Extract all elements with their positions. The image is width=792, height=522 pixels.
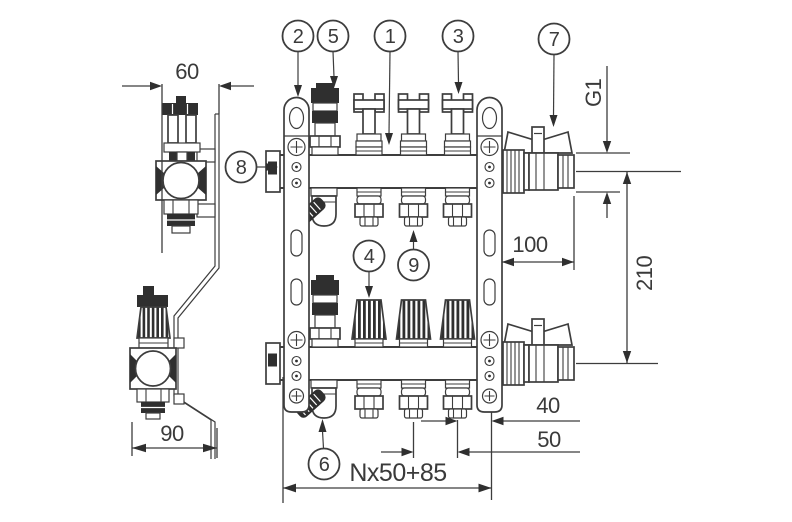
bottom-bar-end-cap <box>266 343 280 384</box>
svg-text:8: 8 <box>236 157 247 179</box>
svg-text:4: 4 <box>364 246 375 268</box>
thermostatic-knob-3 <box>441 299 475 347</box>
outlet-bottom-3 <box>444 380 472 418</box>
outlet-top-1 <box>355 188 383 226</box>
outlet-bottom-2 <box>400 380 428 418</box>
ball-valve-bottom <box>503 319 574 385</box>
outlet-bottom-1 <box>355 380 383 418</box>
callout-3: 3 <box>443 21 474 95</box>
outlet-top-2 <box>400 188 428 226</box>
dim-60-label: 60 <box>175 59 199 84</box>
side-view: 60 90 <box>122 59 254 459</box>
mounting-rail-right <box>477 98 502 413</box>
callout-9: 9 <box>398 230 429 281</box>
thermostatic-knob-1 <box>352 299 386 347</box>
manifold-top-bar <box>278 155 503 188</box>
dim-total-length-label: Nx50+85 <box>349 459 446 487</box>
flow-meter-1 <box>354 94 384 155</box>
dim-g1-label: G1 <box>581 78 606 107</box>
air-vent-top <box>310 83 340 155</box>
dimension-outlet-pitch: 50 <box>381 422 580 458</box>
flow-meter-2 <box>399 94 429 155</box>
svg-text:7: 7 <box>549 29 560 51</box>
dimension-valve-length: 100 <box>502 196 574 270</box>
callout-7: 7 <box>539 24 570 128</box>
manifold-bottom-bar <box>278 347 503 380</box>
side-view-flowmeter-valve <box>156 96 206 233</box>
callout-4: 4 <box>354 241 385 299</box>
top-bar-end-cap <box>266 151 280 192</box>
svg-text:5: 5 <box>328 26 339 48</box>
dim-90-label: 90 <box>160 421 184 446</box>
callout-5: 5 <box>318 21 349 89</box>
dim-100-label: 100 <box>512 232 547 257</box>
outlet-top-3 <box>444 188 472 226</box>
callout-2: 2 <box>283 21 314 98</box>
manifold-drawing: 60 90 <box>0 0 792 522</box>
dimension-thread-size: G1 <box>576 66 630 218</box>
dim-40-label: 40 <box>536 393 560 418</box>
dim-210-label: 210 <box>632 256 657 291</box>
svg-text:6: 6 <box>319 454 330 476</box>
mounting-rail-left <box>284 98 309 413</box>
side-view-thermostatic-valve <box>130 286 176 419</box>
svg-text:9: 9 <box>408 255 419 277</box>
air-vent-bottom <box>310 275 340 347</box>
dim-50-label: 50 <box>537 427 561 452</box>
svg-text:2: 2 <box>293 26 304 48</box>
thermostatic-knob-2 <box>397 299 431 347</box>
ball-valve-top <box>503 127 574 193</box>
callout-1: 1 <box>375 21 406 146</box>
dimension-side-depth-bottom: 90 <box>132 421 217 458</box>
technical-drawing-canvas: 60 90 <box>0 0 792 522</box>
svg-text:1: 1 <box>385 26 396 48</box>
callout-6: 6 <box>309 419 340 480</box>
dimension-row-spacing: 210 <box>576 172 681 364</box>
svg-text:3: 3 <box>453 26 464 48</box>
flow-meter-3 <box>443 94 473 155</box>
